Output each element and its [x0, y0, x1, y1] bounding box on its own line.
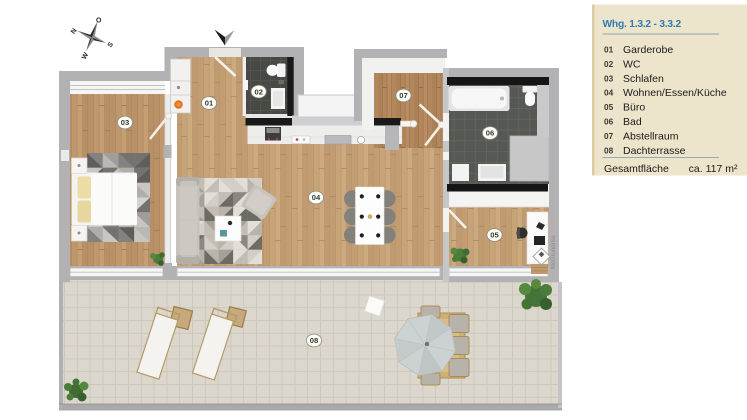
svg-text:08: 08 — [310, 336, 318, 345]
svg-text:Bad: Bad — [623, 116, 642, 128]
svg-text:04: 04 — [604, 88, 614, 98]
svg-text:07: 07 — [604, 131, 614, 141]
svg-text:Wohnen/Essen/Küche: Wohnen/Essen/Küche — [623, 87, 727, 99]
svg-text:ca. 117 m²: ca. 117 m² — [689, 163, 738, 175]
svg-text:05: 05 — [490, 231, 499, 240]
svg-text:Schlafen: Schlafen — [623, 73, 664, 85]
svg-text:03: 03 — [121, 118, 129, 127]
svg-text:Gesamtfläche: Gesamtfläche — [604, 163, 669, 175]
svg-text:Büro: Büro — [623, 102, 645, 114]
svg-text:02: 02 — [254, 87, 262, 96]
svg-text:03: 03 — [604, 73, 614, 83]
svg-text:06: 06 — [604, 117, 614, 127]
svg-text:Dachterrasse: Dachterrasse — [623, 145, 686, 157]
svg-text:07: 07 — [399, 91, 407, 100]
svg-text:O: O — [96, 18, 102, 25]
svg-text:McGrundriss: McGrundriss — [551, 235, 557, 269]
svg-text:01: 01 — [604, 45, 614, 55]
svg-text:Abstellraum: Abstellraum — [623, 130, 679, 142]
svg-text:06: 06 — [486, 129, 494, 138]
svg-text:Whg. 1.3.2 - 3.3.2: Whg. 1.3.2 - 3.3.2 — [603, 19, 682, 30]
svg-text:WC: WC — [623, 58, 641, 70]
svg-text:04: 04 — [312, 193, 321, 202]
svg-text:02: 02 — [604, 59, 614, 69]
svg-text:01: 01 — [205, 99, 214, 108]
svg-text:05: 05 — [604, 102, 614, 112]
svg-text:Garderobe: Garderobe — [623, 44, 673, 56]
svg-text:08: 08 — [604, 145, 614, 155]
